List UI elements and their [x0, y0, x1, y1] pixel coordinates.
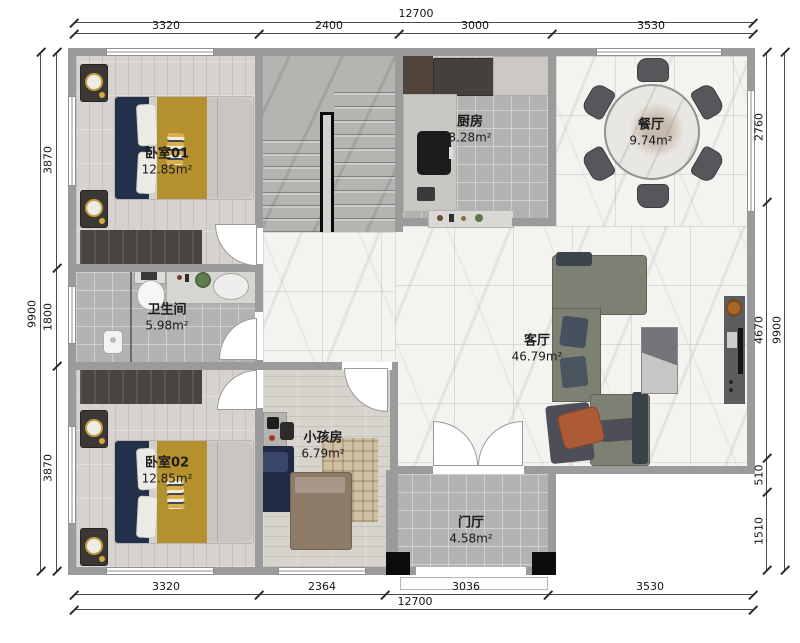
wall [524, 466, 548, 474]
dimension-tick [762, 565, 772, 575]
dimension-tick [52, 263, 62, 273]
nightstand [80, 410, 108, 448]
dimension-label: 2760 [753, 113, 766, 141]
kitchen-cabinet [403, 56, 433, 94]
tv-screen [738, 328, 743, 374]
nightstand [80, 64, 108, 102]
room-label-kitchen: 厨房 8.28m² [448, 114, 491, 145]
room-area: 46.79m² [512, 350, 563, 365]
dimension-line-right-total [784, 52, 785, 570]
dining-chair [637, 184, 669, 208]
room-name: 卧室02 [142, 455, 193, 471]
room-label-dining: 餐厅 9.74m² [629, 117, 672, 148]
dimension-line-right-segments [766, 52, 767, 570]
kitchen-sink [417, 187, 435, 201]
dimension-tick [380, 590, 390, 600]
shower-head [103, 330, 123, 354]
toiletry-item [185, 274, 189, 282]
window [68, 96, 76, 186]
nightstand [80, 190, 108, 228]
room-label-foyer: 门厅 4.58m² [449, 515, 492, 546]
dimension-line-bottom-total [74, 609, 753, 610]
room-area: 12.85m² [142, 472, 193, 487]
dimension-tick [748, 605, 758, 615]
wall [68, 264, 263, 272]
room-name: 卧室01 [142, 146, 193, 162]
kids-bed-sheet [295, 477, 345, 493]
kids-bed-pillow [262, 452, 288, 472]
bar-item [475, 214, 483, 222]
coffee-bar [428, 210, 514, 228]
bed-pillow [136, 496, 158, 539]
dimension-tick [780, 47, 790, 57]
dimension-label: 4670 [753, 316, 766, 344]
pillar [386, 552, 410, 575]
cooktop [417, 131, 451, 175]
sofa-throw-pillow [559, 316, 588, 349]
tv-cabinet [724, 296, 745, 404]
duvet-fold [217, 442, 218, 542]
dimension-tick [748, 18, 758, 28]
window [68, 426, 76, 524]
bed-duvet [207, 98, 253, 198]
dimension-label: 12700 [399, 7, 434, 20]
room-label-bathroom: 卫生间 5.98m² [145, 302, 188, 333]
room-label-bedroom2: 卧室02 12.85m² [142, 455, 193, 486]
window [747, 90, 755, 212]
duvet-fold [217, 98, 218, 198]
wall [403, 218, 428, 226]
kids-bed-mattress [290, 472, 352, 550]
bar-item [437, 215, 443, 221]
dimension-label: 3530 [637, 19, 665, 32]
window [106, 567, 214, 575]
window [278, 567, 366, 575]
kitchen-counter [403, 94, 457, 212]
dimension-label: 12700 [398, 595, 433, 608]
wall [255, 56, 263, 228]
dimension-label: 3320 [152, 19, 180, 32]
fridge [433, 58, 495, 96]
room-name: 卫生间 [145, 302, 188, 318]
dimension-tick [69, 18, 79, 28]
dimension-tick [52, 566, 62, 576]
room-name: 门厅 [449, 515, 492, 531]
wall [548, 466, 755, 474]
dimension-tick [394, 29, 404, 39]
dimension-label: 9900 [26, 300, 39, 328]
dimension-tick [748, 29, 758, 39]
dimension-label: 3530 [636, 580, 664, 593]
dimension-label: 3320 [152, 580, 180, 593]
dining-chair [637, 58, 669, 82]
dimension-tick [547, 29, 557, 39]
wall [548, 56, 556, 226]
dimension-tick [254, 590, 264, 600]
nightstand [80, 528, 108, 566]
room-name: 厨房 [448, 114, 491, 130]
dimension-tick [254, 29, 264, 39]
shower-glass-partition [130, 272, 132, 362]
kitchen-counter [493, 56, 550, 96]
bar-item [461, 216, 466, 221]
dimension-tick [69, 605, 79, 615]
room-area: 6.79m² [301, 447, 344, 462]
dimension-label: 2400 [315, 19, 343, 32]
dimension-label: 9900 [771, 316, 784, 344]
dimension-label: 2364 [308, 580, 336, 593]
dimension-tick [52, 361, 62, 371]
dimension-tick [748, 590, 758, 600]
sink [213, 273, 249, 300]
staircase [263, 56, 395, 232]
dimension-tick [762, 453, 772, 463]
dimension-line-left-segments [56, 52, 57, 571]
desk-item [269, 435, 275, 441]
kids-bed-headboard [258, 446, 294, 512]
room-label-bedroom1: 卧室01 12.85m² [142, 146, 193, 177]
plant [726, 299, 742, 317]
room-label-kids: 小孩房 6.79m² [301, 430, 344, 461]
floor-plan: 卧室01 12.85m² 厨房 8.28m² 餐厅 9.74m² 卫生间 5.9… [0, 0, 800, 643]
coffee-table [641, 327, 678, 394]
toilet-lid [141, 272, 157, 280]
cooktop-handle [449, 147, 453, 159]
wardrobe-bedroom2 [80, 370, 202, 404]
room-name: 小孩房 [301, 430, 344, 446]
armchair-cushion [600, 418, 635, 442]
dimension-tick [36, 47, 46, 57]
bed-pillow [136, 104, 158, 147]
wall [395, 56, 403, 232]
dimension-tick [69, 29, 79, 39]
dimension-label: 3036 [452, 580, 480, 593]
shower-knob [110, 337, 116, 343]
sofa-back-cushion [556, 252, 592, 266]
bathroom-vanity [166, 268, 257, 304]
room-name: 客厅 [512, 333, 563, 349]
wardrobe-bedroom1 [80, 230, 202, 264]
room-name: 餐厅 [629, 117, 672, 133]
dimension-tick [762, 47, 772, 57]
stairs-railing [320, 112, 334, 232]
room-label-living: 客厅 46.79m² [512, 333, 563, 364]
pillar [532, 552, 556, 575]
room-area: 4.58m² [449, 532, 492, 547]
dimension-tick [762, 197, 772, 207]
sofa-arm-dark [632, 392, 648, 464]
stairs-steps-left [263, 140, 320, 232]
room-area: 12.85m² [142, 163, 193, 178]
dimension-tick [69, 590, 79, 600]
toiletry-item [177, 275, 182, 280]
stairs-steps-right [334, 92, 395, 232]
wall [255, 266, 263, 312]
floor-corridor [263, 232, 395, 362]
room-area: 9.74m² [629, 134, 672, 149]
dimension-line-top-segments [74, 33, 753, 34]
media-item [727, 332, 737, 348]
room-area: 8.28m² [448, 131, 491, 146]
wall [512, 218, 548, 226]
window [68, 286, 76, 344]
dimension-label: 1800 [42, 303, 55, 331]
dimension-label: 510 [753, 465, 766, 486]
wall [392, 362, 398, 370]
dimension-label: 3870 [42, 454, 55, 482]
kids-chair [280, 422, 294, 440]
wall [394, 466, 433, 474]
sofa-throw-pillow [560, 356, 589, 389]
dimension-tick [36, 566, 46, 576]
dimension-tick [762, 487, 772, 497]
cabinet-knob [729, 380, 733, 384]
cabinet-knob [729, 388, 733, 392]
window [596, 48, 722, 56]
bar-item [449, 214, 454, 222]
plant [195, 272, 211, 288]
dimension-tick [543, 590, 553, 600]
wall [255, 408, 263, 567]
room-area: 5.98m² [145, 319, 188, 334]
dimension-label: 3000 [461, 19, 489, 32]
bed-duvet [207, 442, 253, 542]
dimension-label: 1510 [753, 517, 766, 545]
wall [68, 362, 342, 370]
window [106, 48, 214, 56]
dimension-tick [780, 565, 790, 575]
desk-item [267, 417, 279, 429]
dimension-tick [52, 47, 62, 57]
dimension-label: 3870 [42, 146, 55, 174]
